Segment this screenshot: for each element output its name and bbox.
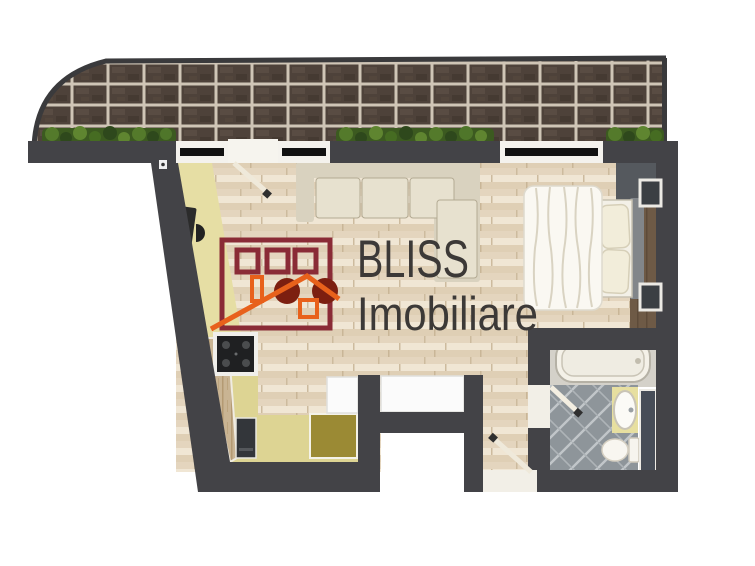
- double-bed: [524, 186, 644, 310]
- wall-bathroom-top: [528, 328, 656, 350]
- terrace: [34, 58, 667, 148]
- cooktop: [213, 332, 258, 376]
- hall-closet-large: [381, 376, 464, 412]
- bed-pillow: [600, 204, 630, 248]
- brand-tagline-text: Imobiliare: [357, 287, 538, 340]
- bathroom-door-threshold: [528, 385, 550, 428]
- wall-hall-middle: [358, 412, 466, 433]
- wall-hall-left: [358, 375, 380, 492]
- wall-top-middle: [330, 141, 500, 163]
- window-terrace-left: [176, 141, 228, 163]
- wall-bathroom-left-upper: [528, 350, 550, 385]
- wall-bottom-right: [528, 470, 678, 492]
- wall-switch: [159, 160, 167, 169]
- wall-bottom-left: [228, 462, 380, 492]
- wall-bathroom-left-lower: [528, 428, 550, 470]
- brand-name-text: BLISS: [357, 230, 469, 289]
- kitchen-counter-block: [310, 414, 357, 458]
- wall-niche: [640, 284, 661, 310]
- window-bedroom: [500, 141, 603, 163]
- floorplan-canvas: BLISS Imobiliare: [0, 0, 755, 566]
- exterior-notch: [381, 433, 464, 493]
- bed-pillow: [600, 249, 630, 293]
- kitchen-appliance: [236, 418, 256, 458]
- wall-top-left: [28, 141, 176, 163]
- wall-niche: [640, 180, 661, 206]
- toilet: [602, 438, 639, 462]
- towel-radiator: [640, 390, 656, 476]
- bathroom: [550, 333, 656, 476]
- floorplan-render: BLISS Imobiliare: [0, 0, 755, 566]
- terrace-door-threshold: [228, 139, 278, 163]
- window-terrace-right: [278, 141, 330, 163]
- wall-hall-right: [464, 375, 483, 492]
- hall-closet-small: [327, 377, 358, 413]
